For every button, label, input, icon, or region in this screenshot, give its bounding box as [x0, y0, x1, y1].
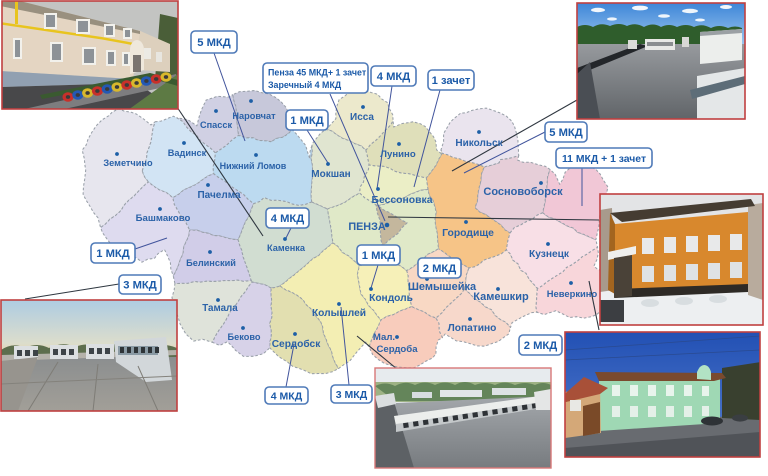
- svg-text:4 МКД: 4 МКД: [271, 391, 303, 403]
- svg-text:Никольск: Никольск: [455, 138, 503, 149]
- svg-text:1 МКД: 1 МКД: [96, 248, 129, 260]
- svg-text:11 МКД + 1 зачет: 11 МКД + 1 зачет: [562, 154, 646, 165]
- svg-text:Кузнецк: Кузнецк: [529, 249, 570, 260]
- svg-text:1 МКД: 1 МКД: [362, 250, 395, 262]
- svg-text:Башмаково: Башмаково: [136, 213, 191, 224]
- svg-text:Наровчат: Наровчат: [232, 111, 276, 121]
- svg-text:Неверкино: Неверкино: [547, 288, 598, 299]
- svg-text:Нижний Ломов: Нижний Ломов: [220, 161, 287, 171]
- svg-text:Белинский: Белинский: [186, 258, 236, 268]
- svg-text:ПЕНЗА: ПЕНЗА: [348, 221, 386, 233]
- svg-text:3 МКД: 3 МКД: [336, 389, 368, 401]
- svg-text:Лунино: Лунино: [380, 149, 416, 160]
- svg-text:4 МКД: 4 МКД: [271, 213, 304, 225]
- svg-text:Пачелма: Пачелма: [197, 190, 240, 201]
- svg-text:Спасск: Спасск: [200, 120, 233, 130]
- svg-text:5 МКД: 5 МКД: [549, 127, 582, 139]
- svg-text:Каменка: Каменка: [267, 243, 306, 253]
- svg-text:2 МКД: 2 МКД: [423, 263, 456, 275]
- svg-text:Колышлей: Колышлей: [312, 308, 366, 319]
- svg-text:Сердоба: Сердоба: [376, 344, 418, 355]
- svg-text:1 зачет: 1 зачет: [432, 75, 471, 87]
- svg-text:Сосновоборск: Сосновоборск: [483, 186, 563, 198]
- svg-text:Городище: Городище: [442, 228, 494, 239]
- svg-text:Заречный 4 МКД: Заречный 4 МКД: [268, 80, 342, 90]
- svg-text:Кондоль: Кондоль: [369, 293, 413, 304]
- svg-text:1 МКД: 1 МКД: [290, 115, 323, 127]
- svg-text:2 МКД: 2 МКД: [524, 340, 557, 352]
- svg-text:Беково: Беково: [228, 332, 261, 342]
- svg-text:Тамала: Тамала: [202, 303, 238, 314]
- svg-text:Пенза 45 МКД+ 1 зачет: Пенза 45 МКД+ 1 зачет: [268, 68, 367, 78]
- svg-text:3 МКД: 3 МКД: [123, 280, 156, 292]
- svg-text:Сердобск: Сердобск: [272, 338, 322, 350]
- svg-text:Камешкир: Камешкир: [473, 291, 529, 303]
- svg-text:Мокшан: Мокшан: [311, 169, 350, 180]
- svg-text:Мал.: Мал.: [373, 332, 395, 343]
- svg-text:Бессоновка: Бессоновка: [371, 195, 432, 206]
- svg-text:Вадинск: Вадинск: [168, 148, 207, 158]
- svg-text:5 МКД: 5 МКД: [197, 37, 230, 49]
- svg-text:Исса: Исса: [350, 112, 374, 123]
- svg-text:4 МКД: 4 МКД: [377, 71, 410, 83]
- svg-text:Шемышейка: Шемышейка: [408, 281, 477, 293]
- svg-text:Лопатино: Лопатино: [448, 323, 497, 334]
- svg-text:Земетчино: Земетчино: [103, 158, 153, 168]
